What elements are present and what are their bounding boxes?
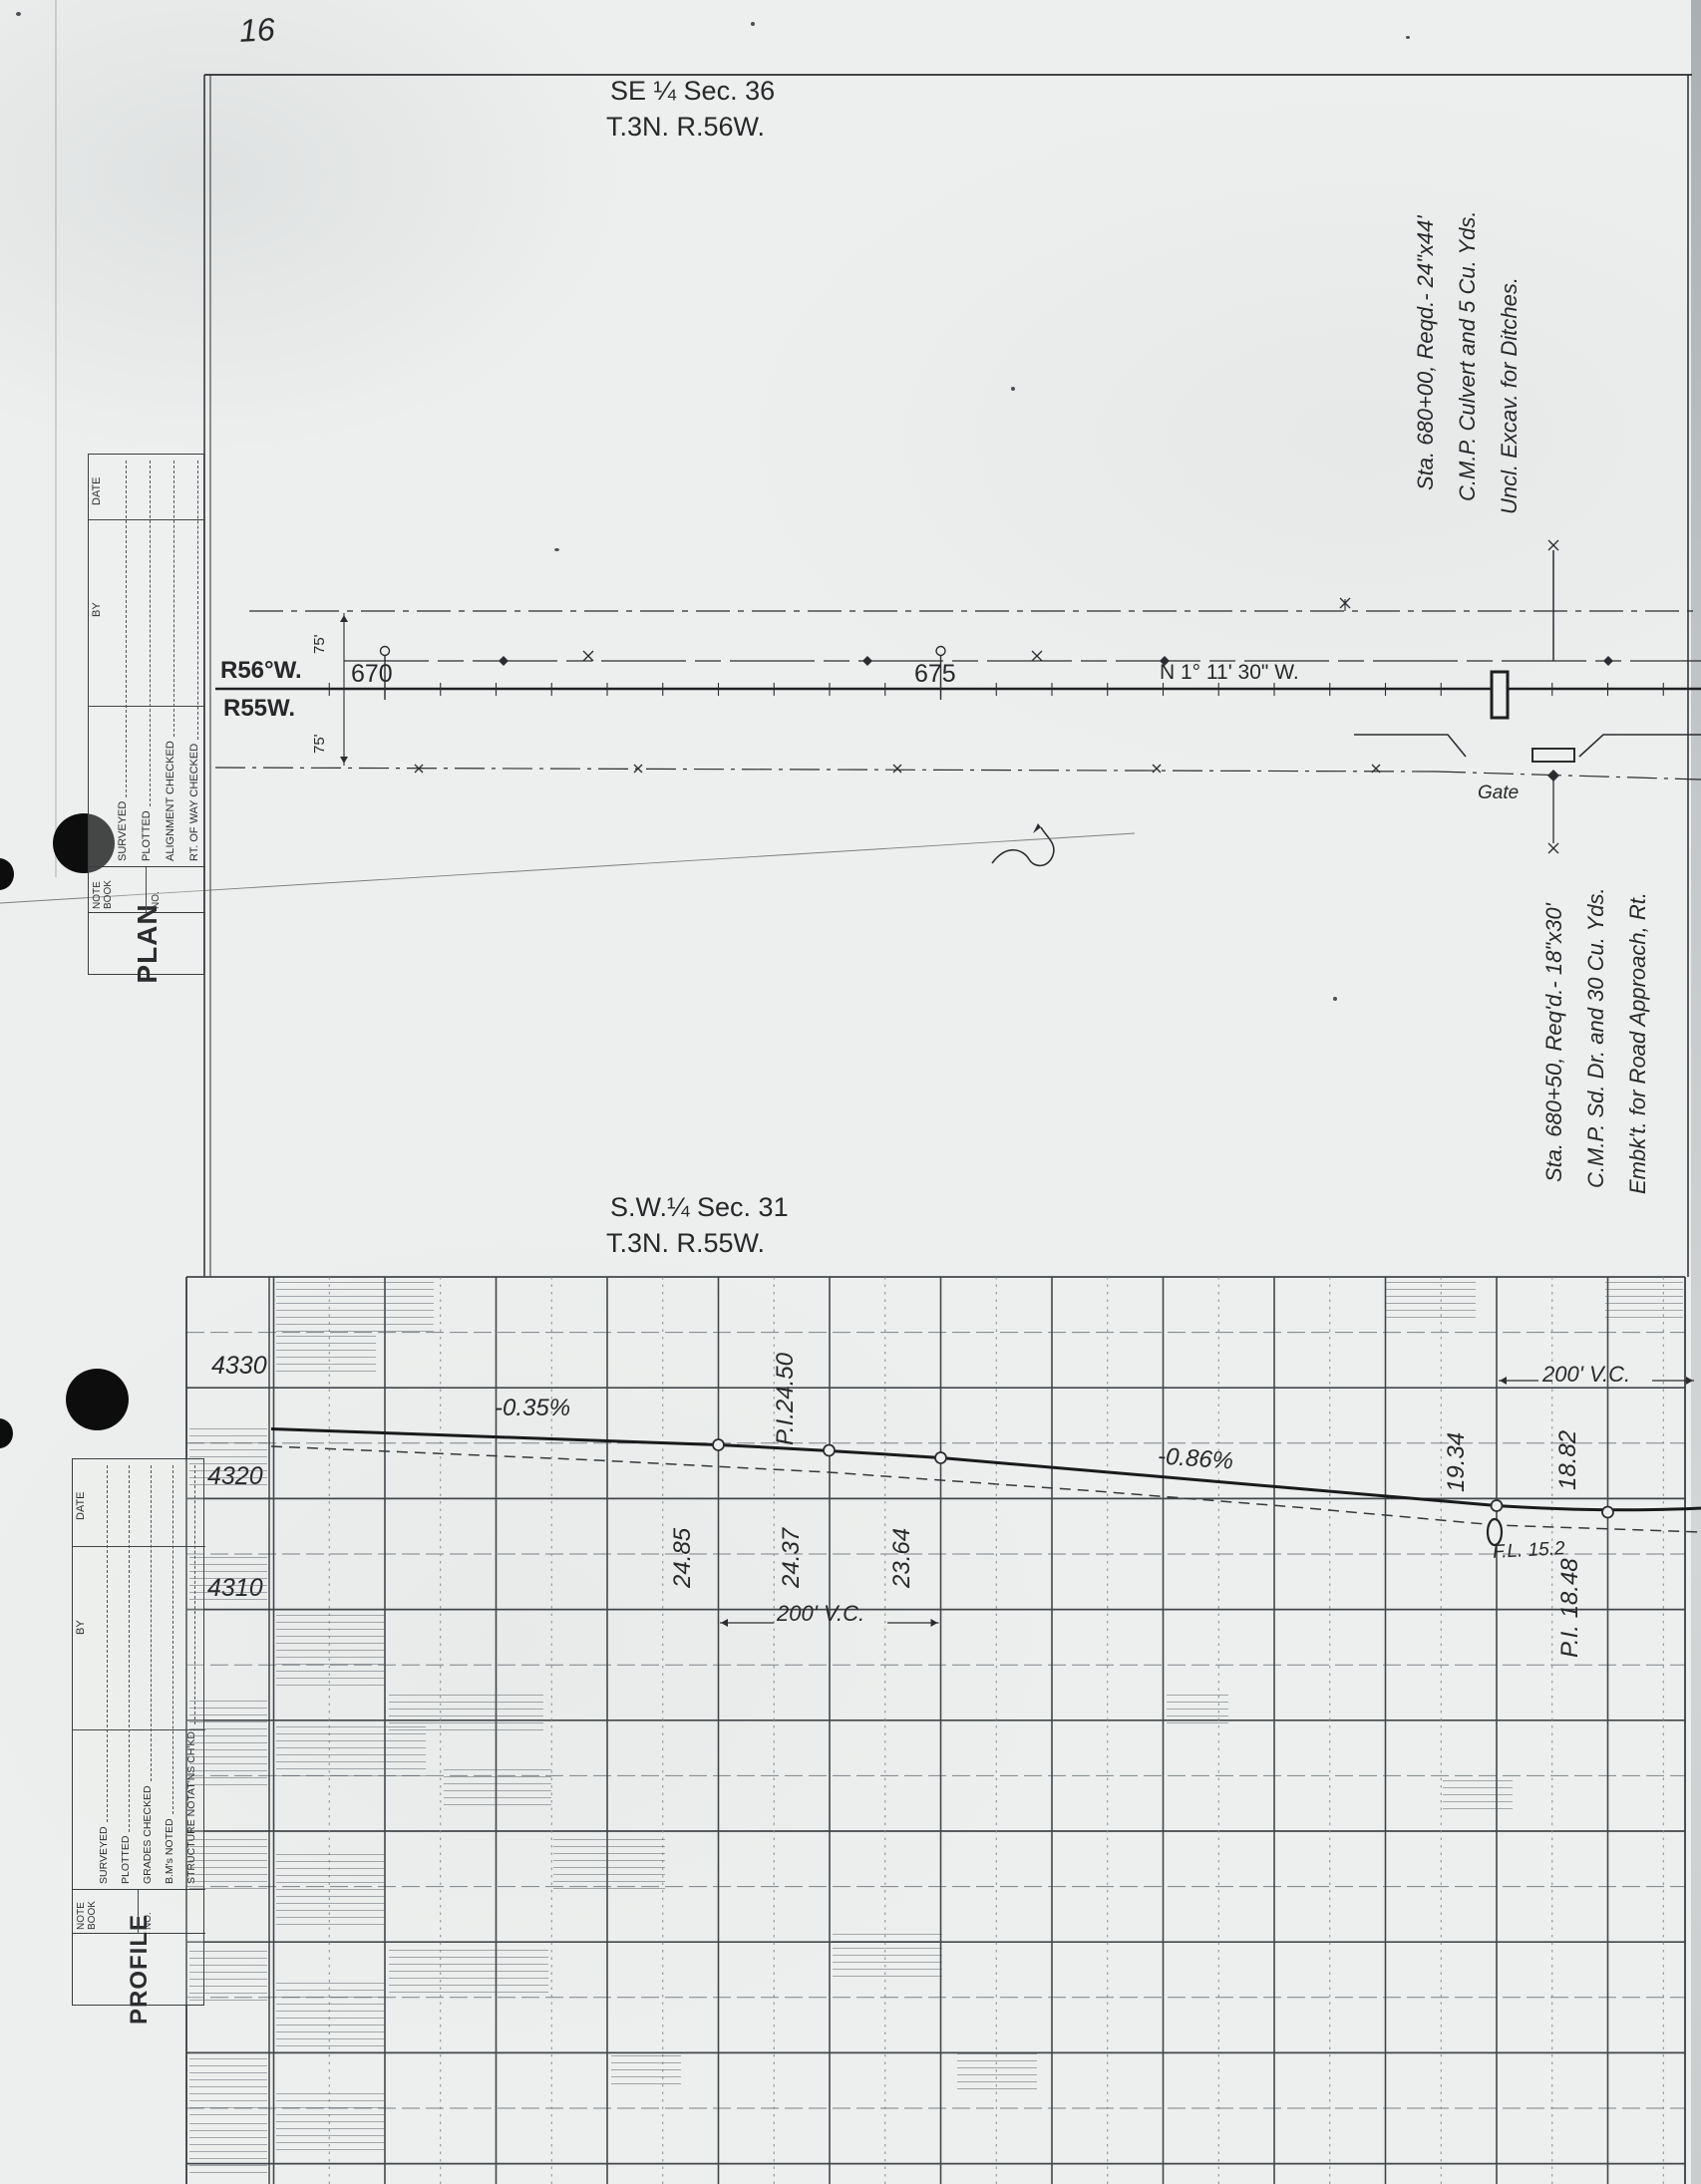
hatch-patch [189, 2123, 267, 2178]
hatch-patch [189, 1557, 267, 1605]
plan-block-by-label: BY [91, 602, 103, 617]
hatch-patch [276, 1854, 384, 1926]
hatch-patch [189, 1951, 267, 2006]
plan-block-no-label: NO. [148, 867, 205, 912]
station-label-670: 670 [351, 662, 393, 687]
vc-label-2: 200' V.C. [1542, 1364, 1630, 1386]
offset-label-75-top: 75' [312, 634, 327, 654]
profile-block-row: GRADES CHECKED [142, 1785, 154, 1884]
station-label-675: 675 [914, 662, 956, 687]
profile-block-row: SURVEYED [98, 1826, 110, 1884]
page-number: 16 [238, 13, 275, 47]
hatch-patch [1386, 1282, 1476, 1318]
grade-label-035: -0.35% [495, 1397, 570, 1420]
profile-section-title-line2: T.3N. R.55W. [606, 1230, 765, 1257]
hatch-patch [189, 2058, 267, 2118]
point-label-2485: 24.85 [671, 1528, 695, 1588]
plan-block-title: PLAN [89, 912, 205, 974]
plan-block-row: RT. OF WAY CHECKED [188, 744, 200, 861]
bearing-label: N 1° 11' 30" W. [1160, 662, 1299, 683]
plan-title-block: PLAN NOTE BOOK NO. BY DATE SURVEYED PLOT… [88, 454, 204, 975]
pi-label-2450: P.I.24.50 [774, 1353, 798, 1445]
profile-block-notebook-label: NOTE BOOK [73, 1890, 139, 1933]
hatch-patch [276, 1726, 426, 1778]
range-label-r55w: R55W. [223, 697, 295, 721]
hatch-patch [276, 1336, 376, 1374]
hatch-patch [444, 1769, 551, 1809]
point-label-1934: 19.34 [1445, 1432, 1469, 1492]
hatch-patch [389, 1950, 548, 1994]
hatch-patch [189, 1839, 267, 1889]
point-label-2437: 24.37 [780, 1528, 804, 1588]
plan-block-row: ALIGNMENT CHECKED [165, 741, 176, 861]
culvert-note-line2: C.M.P. Culvert and 5 Cu. Yds. [1457, 211, 1479, 501]
side-drain-note-line2: C.M.P. Sd. Dr. and 30 Cu. Yds. [1585, 887, 1607, 1188]
plan-block-notebook-label: NOTE BOOK [89, 867, 147, 912]
side-drain-note-line3: Embk't. for Road Approach, Rt. [1627, 892, 1649, 1194]
hatch-patch [276, 2093, 384, 2153]
point-label-2364: 23.64 [890, 1528, 914, 1588]
hatch-patch [553, 1839, 665, 1891]
culvert-note-line1: Sta. 680+00, Reqd.- 24"x44' [1415, 215, 1437, 490]
grade-label-086: -0.86% [1157, 1444, 1234, 1473]
profile-block-no-label: NO. [140, 1890, 204, 1933]
plan-block-row: SURVEYED [117, 801, 129, 861]
plan-block-row: PLOTTED [141, 810, 153, 861]
scanned-plan-profile-sheet: 16 SE ¼ Sec. 36 T.3N. R.56W. R56°W. R55W… [0, 0, 1701, 2184]
plan-section-title-line2: T.3N. R.56W. [606, 114, 765, 141]
side-drain-note-line1: Sta. 680+50, Req'd.- 18"x30' [1543, 903, 1565, 1182]
hatch-patch [1167, 1695, 1228, 1724]
elevation-label-4330: 4330 [211, 1354, 267, 1379]
plan-block-date-label: DATE [91, 476, 103, 505]
profile-block-by-label: BY [75, 1620, 87, 1635]
hatch-patch [276, 1282, 434, 1332]
plan-section-title-line1: SE ¼ Sec. 36 [610, 78, 775, 105]
hatch-patch [833, 1934, 942, 1978]
pi-label-1848: P.I. 18.48 [1558, 1558, 1582, 1658]
culvert-note-line3: Uncl. Excav. for Ditches. [1499, 277, 1521, 514]
hatch-patch [957, 2053, 1037, 2089]
hatch-patch [1443, 1780, 1513, 1814]
hatch-patch [1605, 1282, 1683, 1322]
profile-title-block: PROFILE NOTE BOOK NO. BY DATE SURVEYED P… [72, 1458, 204, 2006]
point-label-1882: 18.82 [1556, 1430, 1580, 1490]
hatch-patch [276, 1983, 384, 2048]
vc-label-1: 200' V.C. [777, 1603, 864, 1625]
profile-section-title-line1: S.W.¼ Sec. 31 [610, 1194, 789, 1221]
hatch-patch [189, 1701, 267, 1785]
range-label-r56w: R56°W. [220, 659, 302, 683]
hatch-patch [276, 1615, 384, 1691]
offset-label-75-bottom: 75' [312, 734, 327, 754]
gate-label: Gate [1478, 783, 1519, 802]
hatch-patch [611, 2055, 681, 2085]
profile-block-title: PROFILE [73, 1933, 205, 2005]
hatch-patch [389, 1695, 543, 1732]
profile-block-row: B.M's NOTED [164, 1818, 175, 1884]
profile-block-row: PLOTTED [120, 1836, 132, 1884]
flowline-label: F.L. 15.2 [1493, 1539, 1565, 1562]
hatch-patch [189, 1428, 267, 1486]
profile-block-date-label: DATE [75, 1491, 87, 1520]
